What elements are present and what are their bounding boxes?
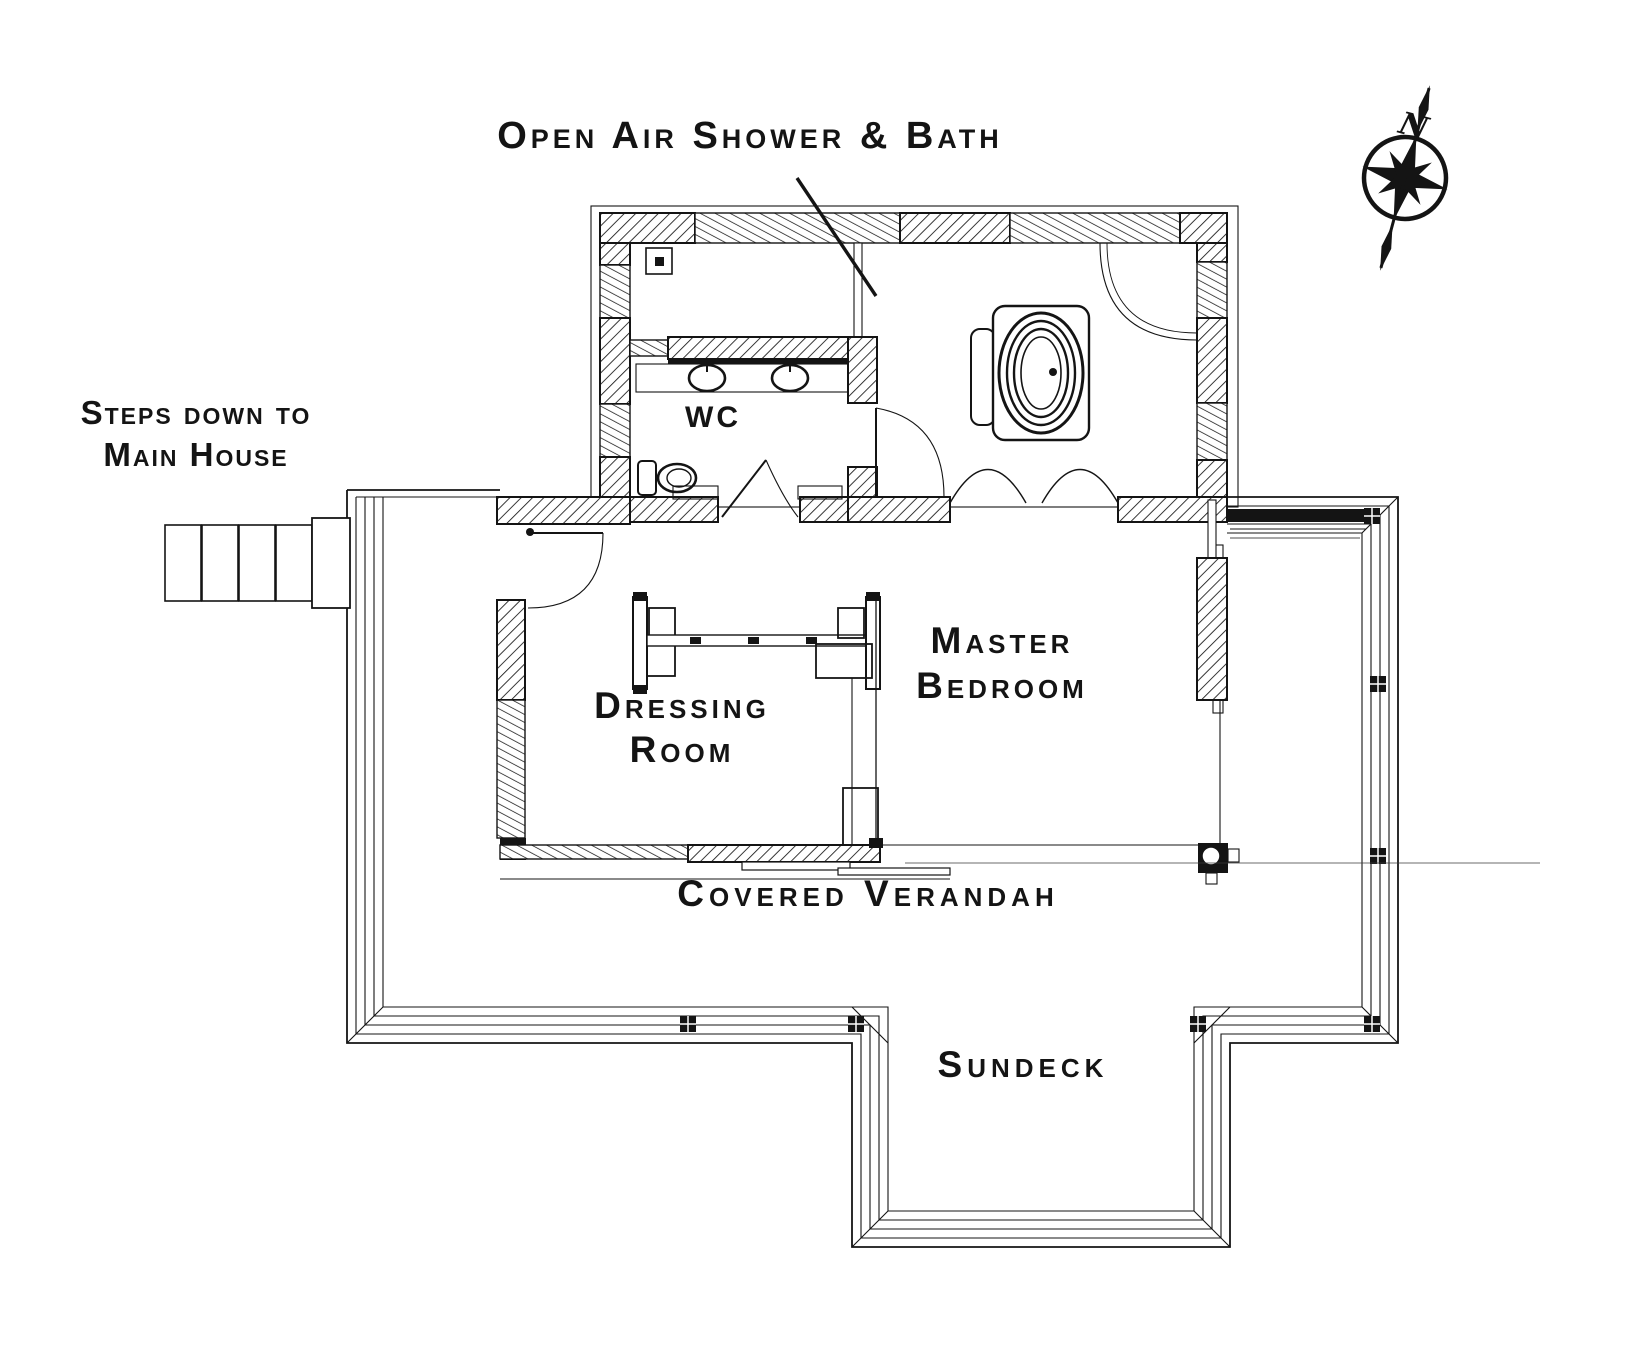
corner-post-icon — [1198, 843, 1239, 884]
vanity — [630, 337, 848, 392]
bathtub-icon — [971, 306, 1089, 440]
deck-posts — [680, 508, 1386, 1032]
area-label-sundeck: Sundeck — [938, 1044, 1109, 1085]
verandah-bench — [1213, 509, 1373, 713]
sink-icon — [772, 361, 808, 391]
bath-south-wall — [630, 497, 1227, 522]
post-icon — [848, 1016, 864, 1032]
post-icon — [1364, 1016, 1380, 1032]
bath-east-wall — [1197, 243, 1227, 497]
area-label-verandah: Covered Verandah — [677, 873, 1058, 914]
steps-label-line2: Main House — [103, 436, 288, 473]
main-north-wall — [497, 497, 630, 524]
room-label-master-line2: Bedroom — [916, 665, 1088, 706]
post-icon — [1370, 848, 1386, 864]
floor-plan-sheet: N Open Air Shower & Bath Steps down to M… — [0, 0, 1643, 1352]
post-icon — [1370, 676, 1386, 692]
main-west-wall — [497, 600, 526, 860]
floor-plan-drawing: N Open Air Shower & Bath Steps down to M… — [0, 0, 1643, 1352]
sliding-door-panel — [742, 862, 850, 870]
bath-west-wall — [600, 243, 630, 497]
room-label-dressing-line1: Dressing — [594, 685, 770, 726]
wc-partition — [848, 243, 877, 497]
steps-label-line1: Steps down to — [81, 394, 312, 431]
bath-block — [591, 206, 1238, 522]
room-label-wc: WC — [685, 401, 741, 434]
wardrobe-island — [633, 592, 880, 694]
step-landing — [312, 518, 350, 608]
master-east-wall — [1197, 500, 1239, 884]
post-icon — [1190, 1016, 1206, 1032]
compass-rose: N — [1338, 74, 1473, 282]
post-icon — [680, 1016, 696, 1032]
room-label-dressing-line2: Room — [630, 729, 735, 770]
bath-north-wall — [600, 213, 1227, 243]
entry-door — [526, 528, 603, 608]
drain-icon — [646, 248, 672, 274]
plan-title: Open Air Shower & Bath — [497, 115, 1003, 157]
toilet-icon — [638, 461, 696, 495]
sink-icon — [689, 361, 725, 391]
post-icon — [1364, 508, 1380, 524]
room-label-master-line1: Master — [931, 620, 1074, 661]
entry-steps — [165, 518, 350, 608]
